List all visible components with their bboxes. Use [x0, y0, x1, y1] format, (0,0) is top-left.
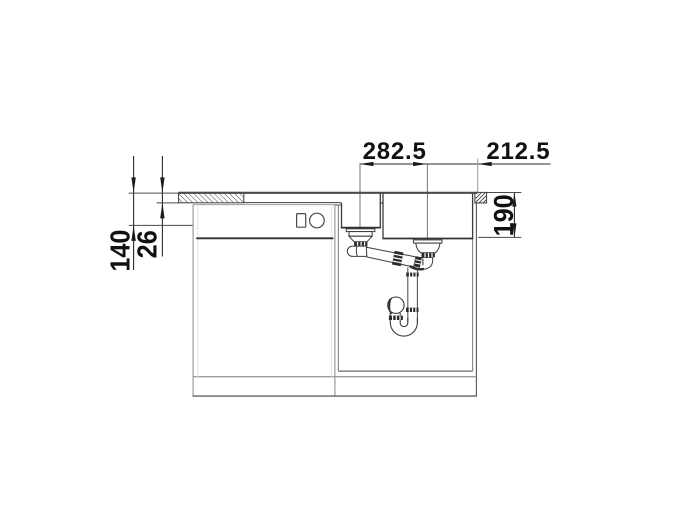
- svg-text:212.5: 212.5: [486, 138, 550, 165]
- svg-text:26: 26: [131, 230, 163, 258]
- svg-text:282.5: 282.5: [363, 138, 427, 165]
